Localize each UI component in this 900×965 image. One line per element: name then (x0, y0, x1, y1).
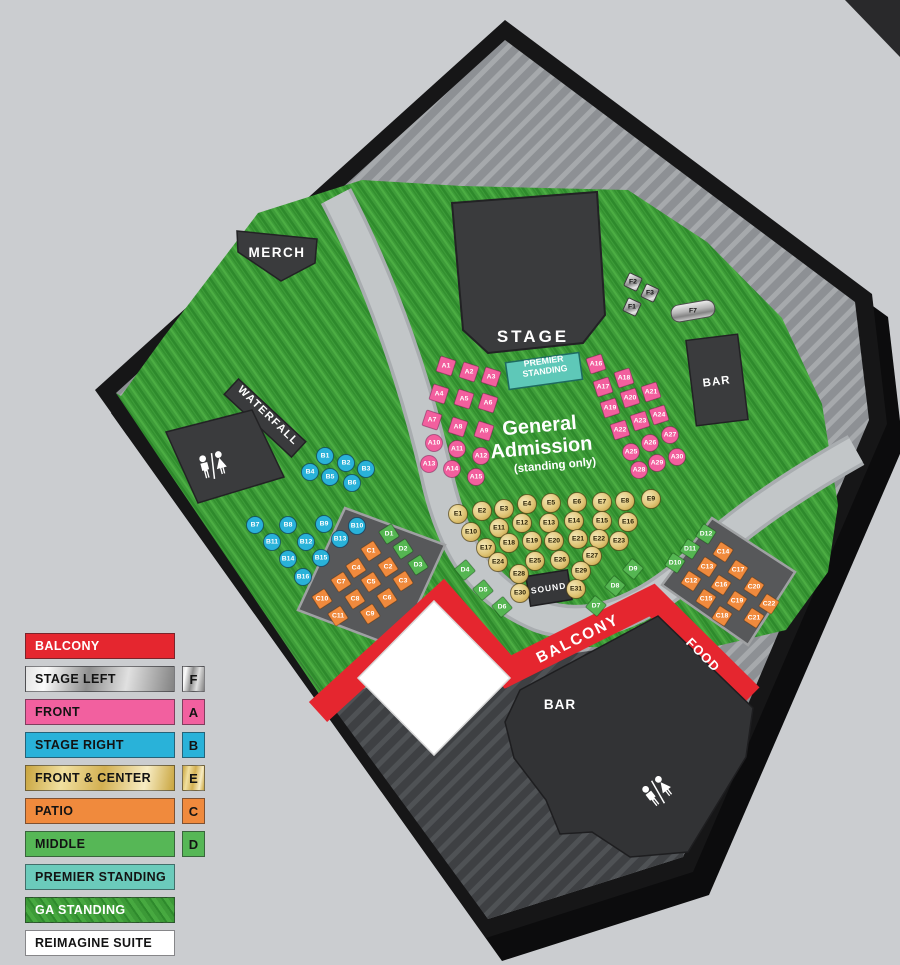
legend-item-stage-left: STAGE LEFTF (25, 666, 205, 692)
legend-swatch-patio: PATIO (25, 798, 175, 824)
legend: BALCONYSTAGE LEFTFFRONTASTAGE RIGHTBFRON… (25, 633, 205, 963)
legend-item-balcony: BALCONY (25, 633, 205, 659)
table-B10[interactable]: B10 (349, 518, 366, 535)
table-B12[interactable]: B12 (298, 534, 315, 551)
venue-seating-map-page: A1A2A3A4A5A6A7A8A9A10A11A12A13A14A15A16A… (0, 0, 900, 965)
table-B16[interactable]: B16 (295, 569, 312, 586)
table-E18[interactable]: E18 (500, 534, 519, 553)
legend-item-premier-standing: PREMIER STANDING (25, 864, 205, 890)
table-E26[interactable]: E26 (551, 551, 570, 570)
legend-label: MIDDLE (26, 837, 85, 851)
legend-item-ga-standing: GA STANDING (25, 897, 205, 923)
legend-label: PREMIER STANDING (26, 870, 166, 884)
table-A30[interactable]: A30 (669, 449, 686, 466)
table-A26[interactable]: A26 (642, 435, 659, 452)
merch-label: MERCH (249, 245, 306, 260)
table-E2[interactable]: E2 (473, 502, 492, 521)
legend-swatch-stage-right: STAGE RIGHT (25, 732, 175, 758)
legend-badge-D: D (182, 831, 205, 857)
table-A28[interactable]: A28 (631, 462, 648, 479)
table-B14[interactable]: B14 (280, 551, 297, 568)
table-E20[interactable]: E20 (545, 532, 564, 551)
page-corner-accent (845, 0, 900, 57)
table-A29[interactable]: A29 (649, 455, 666, 472)
table-B15[interactable]: B15 (313, 550, 330, 567)
legend-label: BALCONY (26, 639, 100, 653)
bar-south-label: BAR (544, 697, 576, 712)
table-E19[interactable]: E19 (523, 532, 542, 551)
table-A10[interactable]: A10 (426, 435, 443, 452)
legend-label: FRONT (26, 705, 80, 719)
table-B9[interactable]: B9 (316, 516, 333, 533)
table-E6[interactable]: E6 (568, 493, 587, 512)
legend-item-middle: MIDDLED (25, 831, 205, 857)
table-E21[interactable]: E21 (569, 530, 588, 549)
legend-badge-F: F (182, 666, 205, 692)
table-E24[interactable]: E24 (489, 553, 508, 572)
legend-item-patio: PATIOC (25, 798, 205, 824)
legend-swatch-balcony: BALCONY (25, 633, 175, 659)
legend-swatch-front-center: FRONT & CENTER (25, 765, 175, 791)
legend-label: PATIO (26, 804, 73, 818)
legend-label: STAGE LEFT (26, 672, 116, 686)
table-E14[interactable]: E14 (565, 512, 584, 531)
legend-badge-E: E (182, 765, 205, 791)
legend-badge-A: A (182, 699, 205, 725)
table-E29[interactable]: E29 (572, 562, 591, 581)
legend-swatch-reimagine-suite: REIMAGINE SUITE (25, 930, 175, 956)
table-A13[interactable]: A13 (421, 456, 438, 473)
legend-swatch-front: FRONT (25, 699, 175, 725)
table-E10[interactable]: E10 (462, 523, 481, 542)
legend-item-stage-right: STAGE RIGHTB (25, 732, 205, 758)
table-A11[interactable]: A11 (449, 441, 466, 458)
legend-label: STAGE RIGHT (26, 738, 124, 752)
legend-swatch-middle: MIDDLE (25, 831, 175, 857)
table-B1[interactable]: B1 (317, 448, 334, 465)
table-E15[interactable]: E15 (593, 512, 612, 531)
legend-swatch-premier-standing: PREMIER STANDING (25, 864, 175, 890)
table-E31[interactable]: E31 (567, 580, 586, 599)
table-A14[interactable]: A14 (444, 461, 461, 478)
legend-swatch-ga-standing: GA STANDING (25, 897, 175, 923)
table-A12[interactable]: A12 (473, 448, 490, 465)
table-A15[interactable]: A15 (468, 469, 485, 486)
legend-item-reimagine-suite: REIMAGINE SUITE (25, 930, 205, 956)
table-B6[interactable]: B6 (344, 475, 361, 492)
table-E4[interactable]: E4 (518, 495, 537, 514)
table-E16[interactable]: E16 (619, 513, 638, 532)
table-E3[interactable]: E3 (495, 500, 514, 519)
table-B3[interactable]: B3 (358, 461, 375, 478)
legend-label: FRONT & CENTER (26, 771, 151, 785)
legend-item-front: FRONTA (25, 699, 205, 725)
table-E8[interactable]: E8 (616, 492, 635, 511)
table-E23[interactable]: E23 (610, 532, 629, 551)
table-E7[interactable]: E7 (593, 493, 612, 512)
table-B11[interactable]: B11 (264, 534, 281, 551)
table-A27[interactable]: A27 (662, 427, 679, 444)
table-E1[interactable]: E1 (449, 505, 468, 524)
stage-label: STAGE (497, 327, 569, 346)
svg-text:(DOWNSTAIRS): (DOWNSTAIRS) (388, 693, 481, 707)
legend-item-front-center: FRONT & CENTERE (25, 765, 205, 791)
table-B7[interactable]: B7 (247, 517, 264, 534)
table-E12[interactable]: E12 (513, 514, 532, 533)
legend-label: REIMAGINE SUITE (26, 936, 152, 950)
table-E5[interactable]: E5 (542, 494, 561, 513)
table-B4[interactable]: B4 (302, 464, 319, 481)
table-E30[interactable]: E30 (511, 584, 530, 603)
table-E22[interactable]: E22 (590, 530, 609, 549)
table-E13[interactable]: E13 (540, 514, 559, 533)
legend-label: GA STANDING (26, 903, 126, 917)
svg-text:REIMAGINE: REIMAGINE (399, 656, 470, 670)
legend-badge-C: C (182, 798, 205, 824)
table-B13[interactable]: B13 (332, 531, 349, 548)
table-B5[interactable]: B5 (322, 469, 339, 486)
legend-badge-B: B (182, 732, 205, 758)
legend-swatch-stage-left: STAGE LEFT (25, 666, 175, 692)
table-E28[interactable]: E28 (510, 565, 529, 584)
table-A25[interactable]: A25 (623, 444, 640, 461)
table-E25[interactable]: E25 (526, 552, 545, 571)
svg-text:SUITE: SUITE (416, 674, 453, 688)
table-E9[interactable]: E9 (642, 490, 661, 509)
table-B2[interactable]: B2 (338, 455, 355, 472)
table-B8[interactable]: B8 (280, 517, 297, 534)
